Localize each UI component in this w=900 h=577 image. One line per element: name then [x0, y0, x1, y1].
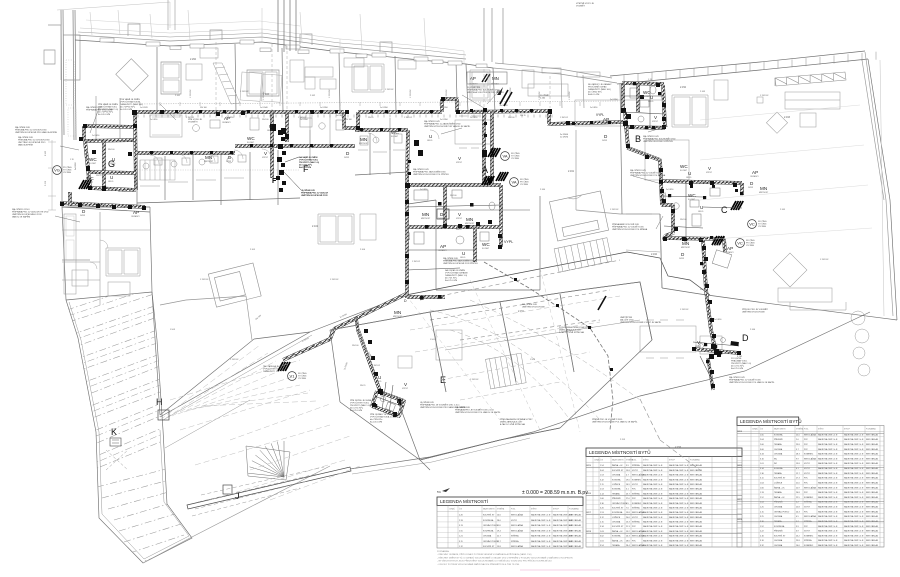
- svg-text:DVÜR: DVÜR: [344, 156, 350, 159]
- svg-text:2x DN50: 2x DN50: [440, 119, 449, 121]
- svg-text:VSTUP: VSTUP: [652, 121, 659, 123]
- svg-text:LEGENDA MÍSTNOSTÍ: LEGENDA MÍSTNOSTÍ: [440, 498, 489, 504]
- svg-text:KER OBKLAD: KER OBKLAD: [569, 535, 582, 538]
- svg-text:STROP: STROP: [669, 460, 676, 462]
- svg-text:20.3: 20.3: [796, 511, 800, 513]
- svg-text:SÁDROVÁ OMÍT. 2x N: SÁDROVÁ OMÍT. 2x N: [818, 501, 838, 504]
- svg-text:2.15: 2.15: [600, 522, 604, 524]
- svg-text:B3/8: B3/8: [738, 519, 743, 521]
- svg-text:SÁDROVÁ OMÍT. 2x N: SÁDROVÁ OMÍT. 2x N: [643, 539, 663, 542]
- svg-text:DN 100: DN 100: [345, 119, 353, 121]
- svg-text:VANOU JE SAPĚM: VANOU JE SAPĚM: [12, 216, 30, 219]
- svg-text:SÁDROVÁ OMÍT. 2x N: SÁDROVÁ OMÍT. 2x N: [844, 453, 864, 456]
- svg-text:- VŠECHNY ODPADNÍ, PŘIPOJOVACÍ: - VŠECHNY ODPADNÍ, PŘIPOJOVACÍ POTRUBÍ V…: [437, 553, 532, 556]
- svg-text:KER OBKLAD: KER OBKLAD: [690, 478, 703, 481]
- svg-text:23.7: 23.7: [626, 493, 630, 495]
- svg-text:SÁDROVÁ OMÍT. 2x N: SÁDROVÁ OMÍT. 2x N: [818, 433, 838, 436]
- svg-text:SÁDROVÁ OMÍT. 2x N: SÁDROVÁ OMÍT. 2x N: [643, 502, 663, 505]
- svg-text:SÁDROVÁ OMÍT. 2x N: SÁDROVÁ OMÍT. 2x N: [844, 433, 864, 436]
- svg-text:WC: WC: [482, 242, 490, 247]
- svg-text:2x DN50: 2x DN50: [440, 107, 449, 109]
- svg-text:KER OBKLAD: KER OBKLAD: [569, 529, 582, 532]
- svg-text:2x DN40: 2x DN40: [665, 191, 667, 200]
- svg-text:SÁDROVÁ OMÍT. 2x N: SÁDROVÁ OMÍT. 2x N: [531, 529, 551, 532]
- svg-text:SÁDROVÁ OMÍT. 2x N: SÁDROVÁ OMÍT. 2x N: [818, 486, 838, 489]
- svg-text:KER OBKLAD: KER OBKLAD: [866, 544, 879, 547]
- svg-text:2.162: 2.162: [651, 253, 658, 256]
- svg-text:KER OBKLAD: KER OBKLAD: [569, 545, 582, 548]
- svg-text:SÁDROVÁ OMÍT. 2x N: SÁDROVÁ OMÍT. 2x N: [643, 492, 663, 495]
- svg-text:KER DLAŽBA: KER DLAŽBA: [804, 433, 817, 436]
- svg-text:28.6: 28.6: [626, 540, 630, 542]
- svg-text:STĚRKA: STĚRKA: [511, 535, 519, 538]
- svg-text:OZNAČ: OZNAČ: [752, 428, 759, 431]
- svg-text:A TAK DO VNĚ STŘECHA: A TAK DO VNĚ STŘECHA: [559, 331, 584, 334]
- svg-text:26.8: 26.8: [796, 492, 800, 494]
- svg-text:VÝMĚRA: VÝMĚRA: [796, 428, 804, 431]
- svg-text:2.66: 2.66: [760, 444, 764, 446]
- svg-text:22.9: 22.9: [796, 487, 800, 489]
- svg-text:KER DLAŽBA: KER DLAŽBA: [511, 514, 524, 517]
- svg-text:OBÝVACÍ POKOJ: OBÝVACÍ POKOJ: [774, 510, 789, 513]
- svg-text:1.70/2.02: 1.70/2.02: [569, 91, 571, 100]
- svg-text:SÁDROVÁ OMÍT. 2x N: SÁDROVÁ OMÍT. 2x N: [818, 539, 838, 542]
- svg-text:1.70/2.02: 1.70/2.02: [446, 89, 448, 98]
- svg-text:2.64: 2.64: [760, 502, 764, 504]
- svg-text:2.16: 2.16: [760, 535, 764, 537]
- svg-text:2x DN50: 2x DN50: [118, 191, 125, 193]
- svg-text:19.6: 19.6: [626, 479, 630, 481]
- svg-text:SÁDROVÁ OMÍT. 2x N: SÁDROVÁ OMÍT. 2x N: [818, 515, 838, 518]
- svg-text:SÁDROVÁ OMÍT. 2x N: SÁDROVÁ OMÍT. 2x N: [844, 481, 864, 484]
- svg-text:TERASA: TERASA: [612, 492, 620, 495]
- svg-text:KER OBKLAD: KER OBKLAD: [866, 486, 879, 489]
- svg-text:TERASA: TERASA: [774, 443, 782, 446]
- svg-text:SÁDROVÁ OMÍT. 2x N: SÁDROVÁ OMÍT. 2x N: [669, 483, 689, 486]
- svg-text:22.5: 22.5: [796, 497, 800, 499]
- svg-text:KER OBKLAD: KER OBKLAD: [866, 510, 879, 513]
- svg-text:PVC: PVC: [804, 449, 809, 451]
- svg-text:WC: WC: [247, 136, 255, 141]
- svg-text:KOMORA: KOMORA: [774, 433, 783, 436]
- svg-text:VODMĚTÍ: VODMĚTÍ: [188, 121, 198, 124]
- svg-text:MN: MN: [466, 217, 473, 222]
- svg-text:12.7: 12.7: [796, 473, 800, 475]
- svg-text:PODL: PODL: [632, 460, 637, 462]
- svg-text:SÁDROVÁ OMÍT. 2x N: SÁDROVÁ OMÍT. 2x N: [669, 497, 689, 500]
- svg-text:3.162: 3.162: [737, 356, 743, 358]
- svg-text:CHODBA: CHODBA: [612, 521, 621, 524]
- svg-text:2.106: 2.106: [360, 249, 366, 251]
- svg-text:KER OBKLAD: KER OBKLAD: [690, 535, 703, 538]
- svg-text:2x DN50: 2x DN50: [92, 135, 99, 137]
- svg-text:ÚKLID: ÚKLID: [460, 256, 466, 259]
- svg-text:B=1.05 L/VM: B=1.05 L/VM: [120, 109, 132, 111]
- svg-text:SÁDROVÁ OMÍT. 2x N: SÁDROVÁ OMÍT. 2x N: [818, 477, 838, 480]
- svg-text:KUCHYŇ. KT: KUCHYŇ. KT: [483, 514, 495, 517]
- svg-text:1.76/2.02: 1.76/2.02: [240, 91, 249, 93]
- svg-text:B2/6: B2/6: [587, 493, 592, 495]
- svg-text:VLYSY: VLYSY: [804, 507, 811, 509]
- svg-text:SÁDROVÁ OMÍT. 2x N: SÁDROVÁ OMÍT. 2x N: [669, 530, 689, 533]
- svg-text:1.64: 1.64: [760, 482, 764, 484]
- svg-text:MÍSTNOST: MÍSTNOST: [204, 160, 214, 163]
- svg-text:2x DN50: 2x DN50: [590, 107, 597, 109]
- svg-text:U: U: [700, 205, 703, 210]
- svg-text:1.76/2.02: 1.76/2.02: [760, 95, 769, 97]
- svg-text:22.7: 22.7: [497, 536, 501, 538]
- svg-text:3.62: 3.62: [600, 536, 604, 538]
- svg-text:UMĚTRNÍ VODOVODNÍ: UMĚTRNÍ VODOVODNÍ: [522, 306, 545, 309]
- svg-text:SÁDROVÁ OMÍT. 2x N: SÁDROVÁ OMÍT. 2x N: [669, 502, 689, 505]
- svg-text:1x DN70: 1x DN70: [140, 107, 149, 109]
- svg-text:1.70/2.02: 1.70/2.02: [410, 89, 412, 98]
- svg-text:ÚKLID: ÚKLID: [376, 380, 382, 383]
- svg-text:1.502: 1.502: [530, 359, 536, 361]
- svg-text:2.11: 2.11: [600, 484, 604, 486]
- svg-text:ÚKLID: ÚKLID: [267, 129, 273, 132]
- svg-text:2.2: 2.2: [796, 502, 799, 504]
- svg-text:3.54: 3.54: [600, 545, 604, 547]
- svg-text:3.36: 3.36: [760, 521, 764, 523]
- svg-text:25.8: 25.8: [796, 507, 800, 509]
- svg-text:2.162: 2.162: [310, 95, 316, 97]
- svg-text:SÁDROVÁ OMÍT. 2x N: SÁDROVÁ OMÍT. 2x N: [643, 506, 663, 509]
- svg-text:SÁDROVÁ OMÍT. 2x N: SÁDROVÁ OMÍT. 2x N: [818, 506, 838, 509]
- svg-text:28.4: 28.4: [626, 545, 630, 547]
- svg-text:3.150: 3.150: [45, 180, 47, 186]
- svg-text:1.55: 1.55: [459, 530, 463, 532]
- svg-text:SÁDROVÁ OMÍT. 2x N: SÁDROVÁ OMÍT. 2x N: [818, 525, 838, 528]
- svg-text:DN 70: DN 70: [360, 385, 365, 387]
- svg-text:VA: VA: [511, 180, 516, 185]
- svg-text:PŘEDSÍŇ: PŘEDSÍŇ: [774, 501, 783, 504]
- svg-text:V1: V1: [290, 374, 296, 379]
- svg-text:SÁDROVÁ OMÍT. 2x N: SÁDROVÁ OMÍT. 2x N: [818, 462, 838, 465]
- svg-text:UMĚTRNÍ VODOVODNÍ: UMĚTRNÍ VODOVODNÍ: [742, 311, 765, 314]
- svg-text:KOMORA: KOMORA: [612, 488, 621, 491]
- svg-text:KER OBKLAD: KER OBKLAD: [690, 488, 703, 491]
- svg-text:PVC: PVC: [632, 526, 637, 528]
- svg-text:STĚNY: STĚNY: [643, 459, 650, 462]
- svg-text:AP: AP: [440, 244, 446, 249]
- svg-text:SÁDROVÁ OMÍT. 2x N: SÁDROVÁ OMÍT. 2x N: [844, 534, 864, 537]
- svg-text:KER OBKLAD: KER OBKLAD: [866, 443, 879, 446]
- svg-text:1.76/2.02: 1.76/2.02: [610, 209, 619, 211]
- svg-text:1.63: 1.63: [600, 531, 604, 533]
- svg-text:PV ČING: PV ČING: [520, 181, 529, 184]
- svg-text:KER OBKLAD: KER OBKLAD: [866, 462, 879, 465]
- svg-text:B3/4: B3/4: [738, 431, 743, 433]
- svg-text:23.7: 23.7: [497, 541, 501, 543]
- svg-text:ŠATNA + LK: ŠATNA + LK: [612, 464, 623, 467]
- svg-text:19.8: 19.8: [626, 470, 630, 472]
- svg-text:27.0: 27.0: [626, 498, 630, 500]
- svg-text:19.8: 19.8: [497, 546, 501, 548]
- svg-text:MÍSTNOST: MÍSTNOST: [421, 217, 431, 220]
- svg-text:KER OBKLAD: KER OBKLAD: [690, 521, 703, 524]
- svg-text:U: U: [378, 375, 381, 380]
- svg-text:3.1: 3.1: [626, 489, 629, 491]
- svg-text:SÁDROVÁ OMÍT. 2x N: SÁDROVÁ OMÍT. 2x N: [669, 516, 689, 519]
- svg-text:SÁDROVÁ OMÍT. 2x N: SÁDROVÁ OMÍT. 2x N: [531, 514, 551, 517]
- svg-text:SÁDROVÁ OMÍT. 2x N: SÁDROVÁ OMÍT. 2x N: [818, 472, 838, 475]
- svg-text:VYPL: VYPL: [596, 113, 604, 117]
- svg-text:2.165: 2.165: [780, 209, 786, 211]
- svg-text:MÍSTNOST: MÍSTNOST: [759, 191, 769, 194]
- svg-text:SÁDROVÁ OMÍT. 2x N: SÁDROVÁ OMÍT. 2x N: [643, 521, 663, 524]
- svg-text:PODL: PODL: [804, 429, 809, 431]
- svg-text:KER OBKLAD: KER OBKLAD: [866, 453, 879, 456]
- svg-text:ÚKLID: ÚKLID: [427, 139, 433, 142]
- svg-text:3.16: 3.16: [760, 458, 764, 460]
- svg-text:SÁDROVÁ OMÍT. 2x N: SÁDROVÁ OMÍT. 2x N: [844, 462, 864, 465]
- svg-text:2.163: 2.163: [784, 116, 791, 119]
- svg-text:2.64: 2.64: [760, 439, 764, 441]
- svg-text:DN 70: DN 70: [700, 289, 705, 291]
- svg-text:2.161: 2.161: [568, 170, 575, 173]
- svg-text:TERASA: TERASA: [774, 491, 782, 494]
- svg-text:KER OBKLAD: KER OBKLAD: [569, 514, 582, 517]
- svg-text:KLOSET: KLOSET: [680, 170, 688, 172]
- svg-text:16.9: 16.9: [626, 484, 630, 486]
- svg-text:KOUPELNA: KOUPELNA: [483, 519, 494, 522]
- svg-text:7.6: 7.6: [626, 507, 629, 509]
- svg-text:DVÜR: DVÜR: [679, 257, 685, 260]
- svg-text:SÁDROVÁ OMÍT. 2x N: SÁDROVÁ OMÍT. 2x N: [844, 457, 864, 460]
- svg-text:1.70: 1.70: [70, 159, 74, 161]
- svg-text:- VE VŠECH BYTECH JSOU PŘEDSTĚ: - VE VŠECH BYTECH JSOU PŘEDSTĚNY VZDUCHO…: [437, 560, 552, 563]
- svg-text:3.34: 3.34: [600, 526, 604, 528]
- svg-text:POZNÁMKA: POZNÁMKA: [569, 508, 579, 511]
- svg-text:1.76/2.02: 1.76/2.02: [385, 89, 394, 91]
- svg-text:KUCHYŇ. KT: KUCHYŇ. KT: [612, 506, 624, 509]
- svg-text:DN 100: DN 100: [108, 149, 114, 151]
- svg-text:1.70/2.02: 1.70/2.02: [510, 87, 512, 96]
- svg-text:UMĚTRNÍ VODOVODNÍ POL BŘEHA: UMĚTRNÍ VODOVODNÍ POL BŘEHA: [612, 228, 648, 231]
- svg-text:DN 70: DN 70: [520, 115, 527, 117]
- svg-text:3.34: 3.34: [760, 468, 764, 470]
- svg-text:KUCHYŇ. KT: KUCHYŇ. KT: [774, 534, 786, 537]
- svg-text:UMĚTRNÍ VODOVODNÍ POL VANOU JE: UMĚTRNÍ VODOVODNÍ POL VANOU JE SÁPŠL: [592, 421, 638, 424]
- svg-text:PVC: PVC: [804, 511, 809, 513]
- svg-text:KER OBKLAD: KER OBKLAD: [690, 544, 703, 547]
- svg-text:1.53: 1.53: [600, 475, 604, 477]
- svg-text:SÁDROVÁ OMÍT. 2x N: SÁDROVÁ OMÍT. 2x N: [818, 491, 838, 494]
- svg-text:SÁDROVÁ OMÍT. 2x N: SÁDROVÁ OMÍT. 2x N: [844, 510, 864, 513]
- svg-text:KER OBKLAD: KER OBKLAD: [690, 530, 703, 533]
- svg-text:VSTUP: VSTUP: [456, 162, 463, 164]
- svg-text:27.3: 27.3: [796, 478, 800, 480]
- svg-text:MÍSTNOST: MÍSTNOST: [465, 222, 475, 225]
- svg-text:2x DN50: 2x DN50: [666, 189, 673, 191]
- svg-text:SÁDROVÁ OMÍT. 2x N: SÁDROVÁ OMÍT. 2x N: [669, 544, 689, 547]
- svg-text:VODMĚT: VODMĚT: [576, 5, 586, 8]
- svg-text:U: U: [429, 134, 432, 139]
- svg-text:NÁZEV MÍSTN: NÁZEV MÍSTN: [774, 428, 786, 431]
- svg-text:23.8: 23.8: [796, 540, 800, 542]
- svg-text:SÁDROVÁ OMÍT. 2x N: SÁDROVÁ OMÍT. 2x N: [818, 448, 838, 451]
- svg-text:21.0: 21.0: [796, 482, 800, 484]
- svg-text:28.6: 28.6: [497, 520, 501, 522]
- svg-text:VC: VC: [737, 241, 743, 246]
- svg-text:- VŠECHNY ZMĚNY BYTŮ, U ODPADŮ: - VŠECHNY ZMĚNY BYTŮ, U ODPADŮ VZDUCHOVA…: [437, 556, 573, 559]
- svg-text:KER OBKLAD: KER OBKLAD: [866, 539, 879, 542]
- svg-text:2.15: 2.15: [760, 511, 764, 513]
- svg-text:SÁDROVÁ OMÍT. 2x N: SÁDROVÁ OMÍT. 2x N: [643, 483, 663, 486]
- svg-text:DN 100: DN 100: [352, 345, 358, 347]
- svg-text:ODPADKY: ODPADKY: [750, 175, 759, 178]
- svg-text:1.76/2.02: 1.76/2.02: [820, 259, 829, 261]
- svg-text:SÁDROVÁ OMÍT. 2x N: SÁDROVÁ OMÍT. 2x N: [669, 539, 689, 542]
- svg-text:23.8: 23.8: [796, 444, 800, 446]
- svg-text:2x DN50: 2x DN50: [75, 161, 77, 170]
- svg-text:KLOSET: KLOSET: [86, 182, 94, 184]
- svg-text:KOMORA: KOMORA: [612, 535, 621, 538]
- svg-text:KER OBKLAD: KER OBKLAD: [866, 438, 879, 441]
- svg-text:SÁDROVÁ OMÍT. 2x N: SÁDROVÁ OMÍT. 2x N: [844, 530, 864, 533]
- svg-text:SÁDROVÁ OMÍT. 2x N: SÁDROVÁ OMÍT. 2x N: [844, 501, 864, 504]
- svg-text:WC: WC: [86, 176, 94, 181]
- svg-text:3.42: 3.42: [600, 479, 604, 481]
- svg-text:KOUPELNA: KOUPELNA: [483, 529, 494, 532]
- svg-text:NÁZEV MÍSTN: NÁZEV MÍSTN: [483, 508, 495, 511]
- svg-text:3.64: 3.64: [600, 470, 604, 472]
- svg-text:UMĚTRNÍ VODOVODNÍ POL VANOU JE: UMĚTRNÍ VODOVODNÍ POL VANOU JE SÁPŠL: [729, 381, 775, 384]
- svg-text:SÁDROVÁ OMÍT. 2x N: SÁDROVÁ OMÍT. 2x N: [643, 464, 663, 467]
- svg-text:VSTUP: VSTUP: [456, 218, 463, 220]
- svg-text:3.9: 3.9: [796, 531, 799, 533]
- svg-text:1.76/2.02: 1.76/2.02: [680, 309, 689, 311]
- svg-text:DN 100: DN 100: [450, 195, 456, 197]
- svg-text:SÁDROVÁ OMÍT. 2x N: SÁDROVÁ OMÍT. 2x N: [818, 453, 838, 456]
- svg-text:ŠATNA + LK: ŠATNA + LK: [774, 496, 785, 499]
- svg-text:KER OBKLAD: KER OBKLAD: [690, 469, 703, 472]
- svg-text:LOŽNICE: LOŽNICE: [774, 481, 783, 484]
- svg-text:A: A: [482, 165, 488, 175]
- svg-text:1.76/2.02: 1.76/2.02: [560, 117, 568, 119]
- svg-text:ODPADKY: ODPADKY: [222, 121, 231, 124]
- svg-text:OBÝVACÍ POKOJ: OBÝVACÍ POKOJ: [483, 540, 498, 543]
- svg-text:KOUPELNA: KOUPELNA: [612, 511, 623, 514]
- svg-text:KER OBKLAD: KER OBKLAD: [569, 519, 582, 522]
- svg-text:UMĚTRNÍ KOUPELNÉ POR: UMĚTRNÍ KOUPELNÉ POR: [301, 194, 328, 197]
- svg-text:SÁDROVÁ OMÍT. 2x N: SÁDROVÁ OMÍT. 2x N: [669, 525, 689, 528]
- svg-text:VSTUP: VSTUP: [262, 157, 269, 159]
- svg-text:VLYSY: VLYSY: [632, 470, 639, 472]
- svg-text:SÁDROVÁ OMÍT. 2x N: SÁDROVÁ OMÍT. 2x N: [669, 474, 689, 477]
- svg-text:1.70/2.02: 1.70/2.02: [539, 91, 541, 100]
- svg-text:F: F: [272, 178, 277, 185]
- svg-text:PŘEDSÍŇ: PŘEDSÍŇ: [774, 438, 783, 441]
- svg-text:KOBEREC: KOBEREC: [804, 535, 814, 537]
- svg-text:SÁDROVÁ OMÍT. 2x N: SÁDROVÁ OMÍT. 2x N: [844, 472, 864, 475]
- svg-text:1.54: 1.54: [600, 465, 604, 467]
- svg-text:2x DN50: 2x DN50: [714, 319, 721, 321]
- svg-text:KER OBKLAD: KER OBKLAD: [866, 481, 879, 484]
- svg-text:CV ŠNG: CV ŠNG: [520, 183, 528, 186]
- svg-text:SÁDROVÁ OMÍT. 2x N: SÁDROVÁ OMÍT. 2x N: [844, 539, 864, 542]
- svg-text:MN: MN: [492, 76, 499, 81]
- svg-text:VLYSY: VLYSY: [804, 473, 811, 475]
- svg-text:SÁDROVÁ OMÍT. 2x N: SÁDROVÁ OMÍT. 2x N: [643, 525, 663, 528]
- svg-text:ODPADKY: ODPADKY: [438, 249, 447, 252]
- svg-text:AP: AP: [133, 210, 139, 215]
- svg-text:KUCHYŇ. KT: KUCHYŇ. KT: [612, 469, 624, 472]
- svg-text:TV ČING: TV ČING: [511, 155, 520, 158]
- svg-text:4.7: 4.7: [626, 475, 629, 477]
- svg-text:KER OBKLAD: KER OBKLAD: [690, 511, 703, 514]
- svg-text:VC: VC: [749, 222, 755, 227]
- svg-text:KER OBKLAD: KER OBKLAD: [866, 457, 879, 460]
- svg-text:SÁDROVÁ OMÍT. 2x N: SÁDROVÁ OMÍT. 2x N: [643, 535, 663, 538]
- svg-text:3.16: 3.16: [760, 540, 764, 542]
- svg-text:SÁDROVÁ OMÍT. 2x N: SÁDROVÁ OMÍT. 2x N: [844, 544, 864, 547]
- svg-text:2.345: 2.345: [45, 150, 47, 156]
- svg-text:MN: MN: [360, 137, 367, 142]
- svg-text:KER DLAŽBA: KER DLAŽBA: [511, 529, 524, 532]
- svg-text:VÝMĚRA: VÝMĚRA: [497, 508, 505, 511]
- svg-text:OBÝVACÍ POKOJ: OBÝVACÍ POKOJ: [483, 524, 498, 527]
- svg-text:SÁDROVÁ OMÍT. 2x N: SÁDROVÁ OMÍT. 2x N: [643, 530, 663, 533]
- svg-text:B=0.25 L/VM: B=0.25 L/VM: [445, 280, 457, 282]
- svg-text:TERASA: TERASA: [774, 472, 782, 475]
- svg-text:3.11: 3.11: [760, 478, 764, 480]
- svg-text:2.152: 2.152: [680, 86, 687, 89]
- svg-text:KER OBKLAD: KER OBKLAD: [690, 492, 703, 495]
- svg-text:KLOSET: KLOSET: [391, 136, 399, 138]
- svg-text:SÁDROVÁ OMÍT. 2x N: SÁDROVÁ OMÍT. 2x N: [643, 497, 663, 500]
- svg-text:SÁDROVÁ OMÍT. 2x N: SÁDROVÁ OMÍT. 2x N: [818, 496, 838, 499]
- svg-text:2.14: 2.14: [600, 493, 604, 495]
- svg-text:KER OBKLAD: KER OBKLAD: [690, 539, 703, 542]
- svg-text:3.13: 3.13: [459, 525, 463, 527]
- svg-text:DN 70: DN 70: [368, 117, 373, 119]
- svg-text:2x DN50: 2x DN50: [420, 189, 427, 191]
- svg-text:STĚRKA: STĚRKA: [632, 506, 640, 509]
- svg-text:B=N.0 L/VM: B=N.0 L/VM: [588, 94, 600, 96]
- svg-text:STĚRKA: STĚRKA: [632, 492, 640, 495]
- svg-text:2.166: 2.166: [750, 329, 756, 331]
- svg-text:SV ČING: SV ČING: [758, 220, 767, 223]
- svg-text:2.22: 2.22: [760, 531, 764, 533]
- svg-text:KOBEREC: KOBEREC: [804, 454, 814, 456]
- svg-text:SÁDROVÁ OMÍT. 2x N: SÁDROVÁ OMÍT. 2x N: [669, 511, 689, 514]
- svg-text:KOBEREC: KOBEREC: [632, 503, 642, 505]
- svg-text:SÁDROVÁ OMÍT. 2x N: SÁDROVÁ OMÍT. 2x N: [669, 478, 689, 481]
- svg-text:SÁDROVÁ OMÍT. 2x N: SÁDROVÁ OMÍT. 2x N: [531, 545, 551, 548]
- svg-text:SÁDROVÁ OMÍT. 2x N: SÁDROVÁ OMÍT. 2x N: [531, 535, 551, 538]
- svg-text:KER OBKLAD: KER OBKLAD: [866, 525, 879, 528]
- svg-text:2.153: 2.153: [620, 439, 626, 441]
- svg-text:KOBEREC: KOBEREC: [632, 479, 642, 481]
- svg-text:- ODVODY POTRUBÍ VZDUCHOVANÉ Z: - ODVODY POTRUBÍ VZDUCHOVANÉ ZAŘIZOVACÍC…: [437, 563, 520, 566]
- svg-text:KER OBKLAD: KER OBKLAD: [569, 524, 582, 527]
- svg-text:1.76/2.02: 1.76/2.02: [470, 379, 479, 381]
- svg-text:3.9: 3.9: [796, 526, 799, 528]
- svg-text:STĚRKA: STĚRKA: [511, 540, 519, 543]
- svg-text:SÁDROVÁ OMÍT. 2x N: SÁDROVÁ OMÍT. 2x N: [669, 535, 689, 538]
- svg-text:2x DN50: 2x DN50: [226, 117, 233, 119]
- svg-text:PŘEDSÍŇ: PŘEDSÍŇ: [774, 530, 783, 533]
- svg-text:B=0.25 L/VM: B=0.25 L/VM: [299, 167, 311, 169]
- svg-text:MN: MN: [682, 241, 689, 246]
- svg-text:DN 100: DN 100: [508, 117, 514, 119]
- svg-text:SÁDROVÁ OMÍT. 2x N: SÁDROVÁ OMÍT. 2x N: [844, 525, 864, 528]
- svg-text:POZNÁMKA: POZNÁMKA: [866, 428, 876, 431]
- svg-text:MÍSTNOST: MÍSTNOST: [359, 142, 369, 145]
- svg-text:KUCHYŇ. KT: KUCHYŇ. KT: [483, 545, 495, 548]
